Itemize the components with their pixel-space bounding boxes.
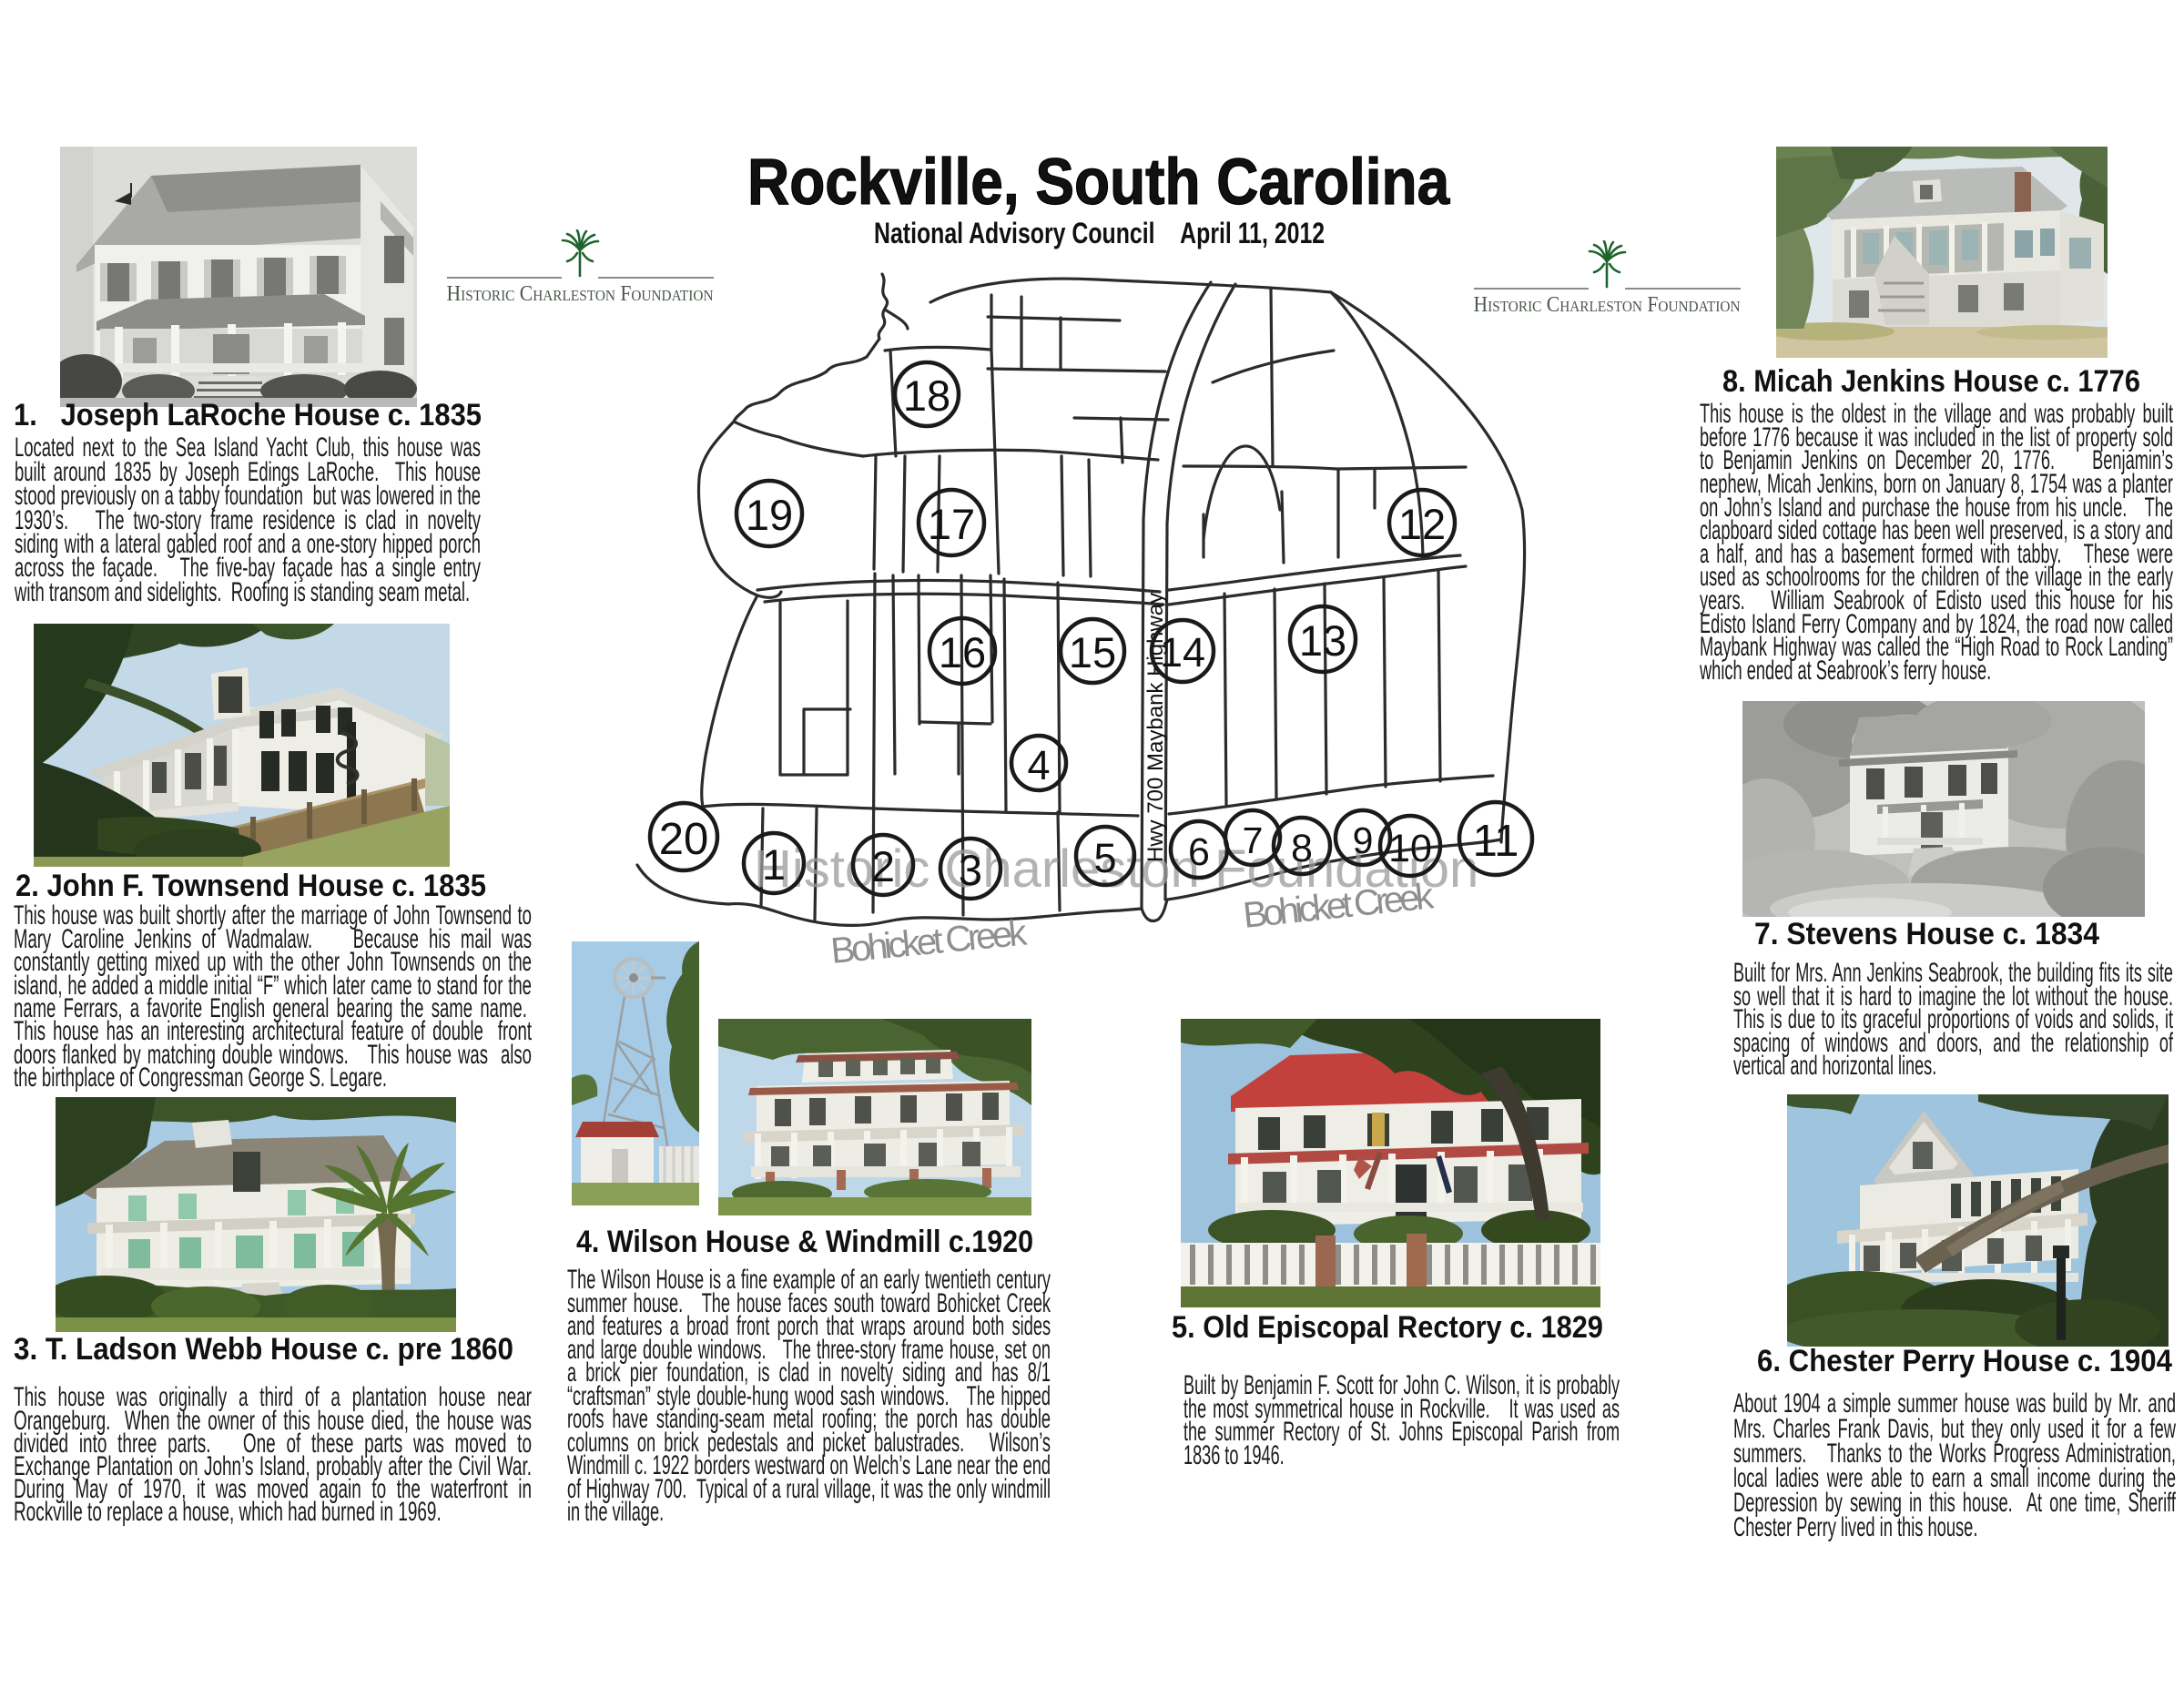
svg-text:11: 11 xyxy=(1473,817,1519,866)
svg-text:15: 15 xyxy=(1069,628,1116,676)
svg-text:18: 18 xyxy=(903,371,950,420)
svg-text:6: 6 xyxy=(1188,830,1210,874)
svg-text:Bohicket Creek: Bohicket Creek xyxy=(829,912,1030,971)
svg-text:3: 3 xyxy=(959,846,982,894)
svg-text:8: 8 xyxy=(1291,827,1313,870)
svg-text:20: 20 xyxy=(659,815,709,864)
svg-text:16: 16 xyxy=(939,628,986,676)
svg-text:14: 14 xyxy=(1160,629,1205,676)
svg-text:10: 10 xyxy=(1388,827,1432,870)
svg-text:2: 2 xyxy=(871,842,895,890)
svg-text:7: 7 xyxy=(1243,819,1264,861)
svg-text:9: 9 xyxy=(1353,819,1374,861)
svg-text:1: 1 xyxy=(762,840,786,889)
svg-text:17: 17 xyxy=(928,500,975,548)
svg-text:13: 13 xyxy=(1299,616,1346,665)
svg-text:19: 19 xyxy=(746,491,793,539)
svg-text:4: 4 xyxy=(1027,742,1050,788)
svg-text:5: 5 xyxy=(1093,835,1116,881)
svg-text:12: 12 xyxy=(1398,500,1446,548)
